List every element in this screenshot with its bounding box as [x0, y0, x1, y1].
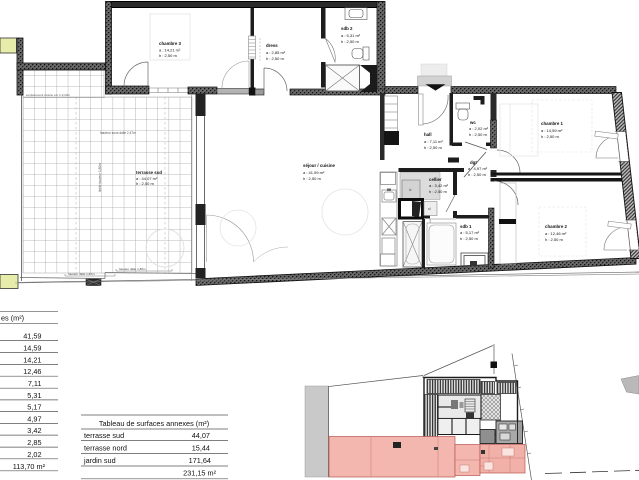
svg-text:wc: wc	[469, 120, 476, 125]
svg-text:5,17: 5,17	[27, 403, 41, 412]
svg-text:41,59: 41,59	[23, 332, 41, 341]
svg-text:terrasse nord: terrasse nord	[84, 444, 127, 453]
svg-text:lv: lv	[409, 188, 412, 192]
svg-text:terrasse sud: terrasse sud	[136, 170, 162, 175]
svg-text:7,11: 7,11	[28, 379, 42, 388]
svg-text:chambre 2: chambre 2	[545, 224, 568, 229]
svg-text:a : 7,11 m²: a : 7,11 m²	[424, 139, 443, 144]
svg-text:h : 2,50 m: h : 2,50 m	[541, 134, 559, 139]
svg-text:terrasse sud: terrasse sud	[84, 431, 124, 440]
svg-text:hauteur dalle 1,80m: hauteur dalle 1,80m	[68, 272, 95, 276]
svg-text:séjour / cuisine: séjour / cuisine	[303, 163, 336, 168]
svg-text:a : 5,17 m²: a : 5,17 m²	[460, 230, 480, 235]
svg-text:a : 5,31 m²: a : 5,31 m²	[341, 33, 361, 38]
svg-text:h : 2,50 m: h : 2,50 m	[429, 189, 447, 194]
svg-text:emplacement cuisine ext. h:2,2: emplacement cuisine ext. h:2,20m	[26, 93, 70, 97]
svg-text:jardin sud: jardin sud	[83, 456, 116, 465]
svg-text:a : 41,59 m²: a : 41,59 m²	[303, 170, 325, 175]
svg-text:113,70 m²: 113,70 m²	[13, 462, 46, 471]
svg-text:a : 2,02 m²: a : 2,02 m²	[469, 126, 489, 131]
svg-text:cellier: cellier	[429, 177, 442, 182]
svg-text:14,59: 14,59	[23, 344, 41, 353]
svg-text:limite hauteur 1,80m: limite hauteur 1,80m	[98, 163, 102, 192]
svg-text:a : 3,42 m²: a : 3,42 m²	[429, 183, 449, 188]
svg-text:a : 14,21 m²: a : 14,21 m²	[159, 48, 181, 53]
svg-text:231,15 m²: 231,15 m²	[183, 469, 216, 478]
svg-text:h : 2,50 m: h : 2,50 m	[159, 53, 177, 58]
svg-text:a : 2,85 m²: a : 2,85 m²	[266, 50, 286, 55]
svg-text:h : 2,50 m: h : 2,50 m	[460, 236, 478, 241]
svg-text:h : 2,50 m: h : 2,50 m	[545, 237, 563, 242]
svg-text:h : 2,50 m: h : 2,50 m	[136, 181, 154, 186]
svg-text:44,07: 44,07	[192, 431, 210, 440]
svg-text:h : 2,50 m: h : 2,50 m	[469, 132, 487, 137]
svg-text:h : 2,50 m: h : 2,50 m	[303, 176, 321, 181]
svg-text:hauteur sous dalle 2,47m: hauteur sous dalle 2,47m	[100, 131, 136, 135]
svg-text:a : 14,59 m²: a : 14,59 m²	[541, 128, 563, 133]
svg-text:h : 2,50 m: h : 2,50 m	[266, 56, 284, 61]
svg-text:4,97: 4,97	[27, 415, 41, 424]
svg-text:h : 2,50 m: h : 2,50 m	[468, 172, 486, 177]
svg-text:Tableau de surfaces annexes (m: Tableau de surfaces annexes (m²)	[99, 419, 209, 428]
svg-text:h : 2,50 m: h : 2,50 m	[341, 39, 359, 44]
svg-text:es (m²): es (m²)	[1, 314, 24, 323]
svg-text:chambre 3: chambre 3	[159, 41, 182, 46]
svg-text:sl: sl	[428, 207, 431, 211]
svg-text:h : 2,50 m: h : 2,50 m	[424, 145, 442, 150]
svg-text:2,85: 2,85	[27, 438, 41, 447]
svg-text:dress: dress	[266, 43, 278, 48]
svg-text:sdb 2: sdb 2	[341, 26, 353, 31]
svg-text:a : 12,46 m²: a : 12,46 m²	[545, 231, 567, 236]
svg-text:2,02: 2,02	[27, 450, 41, 459]
svg-text:15,44: 15,44	[192, 444, 210, 453]
svg-text:sdb 1: sdb 1	[460, 224, 472, 229]
svg-text:hauteur dalle 1,80m: hauteur dalle 1,80m	[119, 267, 146, 271]
svg-text:12,46: 12,46	[23, 367, 41, 376]
svg-text:hall: hall	[424, 132, 432, 137]
svg-text:5,31: 5,31	[27, 391, 41, 400]
svg-text:171,64: 171,64	[189, 456, 211, 465]
svg-text:3,42: 3,42	[27, 426, 41, 435]
svg-text:14,21: 14,21	[23, 356, 41, 365]
svg-text:chambre 1: chambre 1	[541, 121, 564, 126]
